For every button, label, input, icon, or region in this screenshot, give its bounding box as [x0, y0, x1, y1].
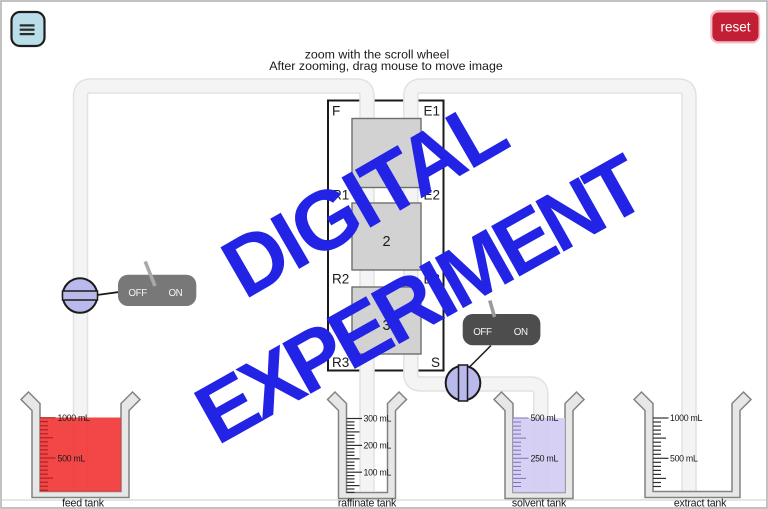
svg-text:F: F: [332, 104, 340, 119]
svg-text:500 mL: 500 mL: [670, 453, 698, 463]
svg-text:OFF: OFF: [128, 288, 147, 299]
svg-text:ON: ON: [514, 327, 528, 338]
svg-text:reset: reset: [720, 20, 750, 35]
svg-text:solvent tank: solvent tank: [512, 498, 567, 509]
svg-text:ON: ON: [168, 288, 182, 299]
svg-text:After zooming, drag mouse to m: After zooming, drag mouse to move image: [269, 59, 503, 73]
svg-text:500 mL: 500 mL: [531, 413, 559, 423]
svg-text:R2: R2: [332, 272, 349, 287]
svg-text:feed tank: feed tank: [62, 498, 105, 509]
svg-text:raffinate tank: raffinate tank: [338, 498, 397, 509]
svg-text:300 mL: 300 mL: [364, 414, 392, 424]
svg-text:250 mL: 250 mL: [531, 454, 559, 464]
svg-text:1000 mL: 1000 mL: [670, 413, 703, 423]
svg-text:200 mL: 200 mL: [364, 441, 392, 451]
svg-text:100 mL: 100 mL: [364, 467, 392, 477]
svg-text:500 mL: 500 mL: [58, 453, 86, 463]
svg-text:1000 mL: 1000 mL: [58, 413, 91, 423]
svg-text:extract tank: extract tank: [674, 498, 727, 509]
svg-text:OFF: OFF: [473, 327, 492, 338]
svg-text:S: S: [431, 355, 440, 370]
